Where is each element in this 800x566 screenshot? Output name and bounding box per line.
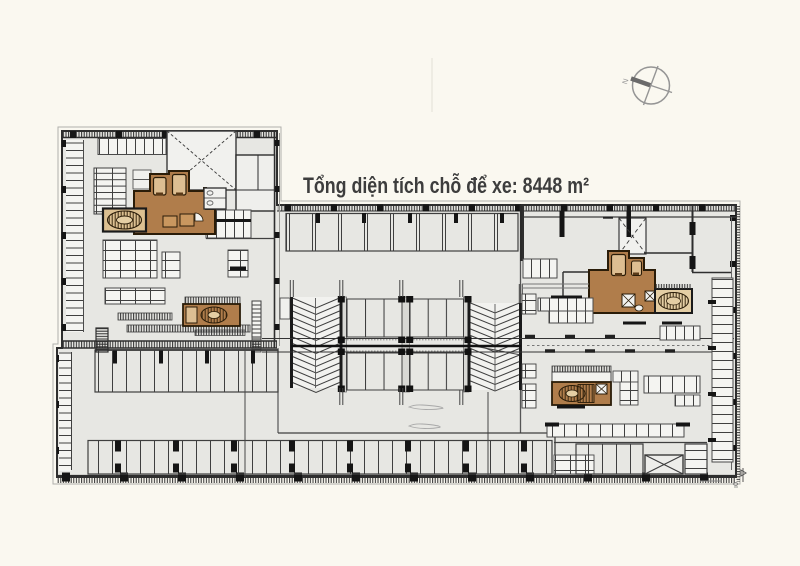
svg-text:Tổng diện tích chỗ để xe: 8448: Tổng diện tích chỗ để xe: 8448 m²: [303, 173, 589, 198]
